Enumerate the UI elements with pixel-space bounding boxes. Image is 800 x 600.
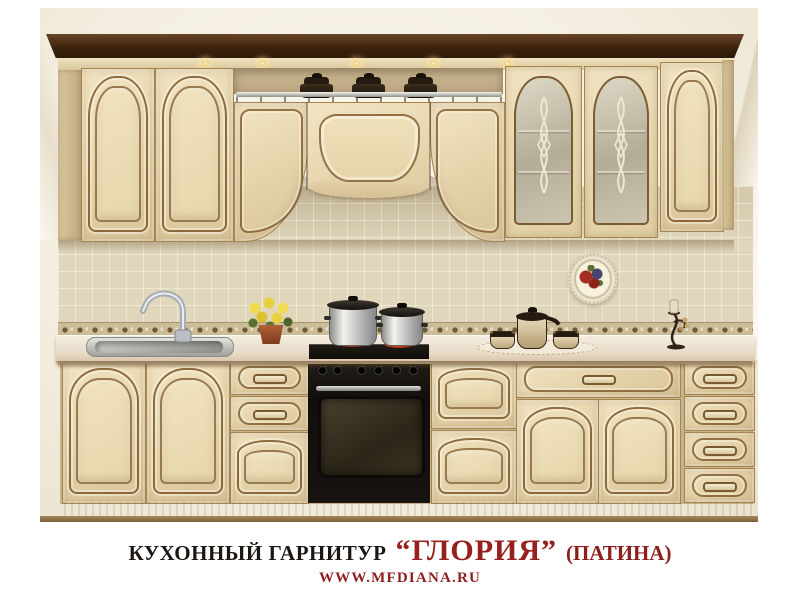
drawer bbox=[230, 396, 309, 431]
door-panel bbox=[95, 86, 141, 222]
door-panel bbox=[169, 86, 220, 222]
candle-holder bbox=[654, 294, 694, 350]
faucet bbox=[128, 282, 208, 344]
promo-image: КУХОННЫЙ ГАРНИТУР “ГЛОРИЯ” (ПАТИНА) WWW.… bbox=[0, 0, 800, 600]
drawer-handle bbox=[253, 410, 287, 420]
glass-door-2 bbox=[584, 66, 658, 238]
base-door-2 bbox=[146, 360, 230, 504]
caption: КУХОННЫЙ ГАРНИТУР “ГЛОРИЯ” (ПАТИНА) WWW.… bbox=[0, 524, 800, 600]
base-door-stacked-top bbox=[431, 360, 517, 429]
base-door-small bbox=[230, 432, 309, 504]
caption-line-1: КУХОННЫЙ ГАРНИТУР “ГЛОРИЯ” (ПАТИНА) bbox=[128, 534, 671, 568]
drawer-handle bbox=[703, 446, 737, 456]
glass-door-1 bbox=[505, 66, 582, 238]
drawer bbox=[684, 432, 755, 467]
door-panel bbox=[674, 80, 710, 212]
cabinet-side-panel-right bbox=[722, 60, 734, 230]
countertop-shadow bbox=[58, 361, 752, 369]
upper-door-2 bbox=[155, 68, 234, 242]
door-panel bbox=[160, 378, 216, 484]
cooking-pot-small bbox=[381, 312, 423, 346]
drawer-handle bbox=[703, 482, 737, 492]
upper-door-right bbox=[660, 62, 724, 232]
under-cabinet-light bbox=[353, 61, 360, 66]
floor-line bbox=[40, 516, 758, 522]
base-door-stacked-bottom bbox=[431, 430, 517, 504]
drawer-handle bbox=[253, 374, 287, 384]
candle-leaf bbox=[685, 324, 690, 329]
hood-center-panel-outline bbox=[319, 114, 420, 182]
caption-finish-note: (ПАТИНА) bbox=[566, 541, 671, 566]
panel-seam bbox=[306, 102, 308, 190]
candle-leaf bbox=[679, 327, 683, 331]
caption-product-name: “ГЛОРИЯ” bbox=[395, 534, 557, 568]
faucet-base bbox=[175, 330, 191, 342]
caption-prefix: КУХОННЫЙ ГАРНИТУР bbox=[128, 541, 386, 566]
base-door-4 bbox=[598, 399, 681, 504]
under-cabinet-light bbox=[259, 61, 266, 66]
frosted-glass bbox=[514, 76, 573, 225]
base-door-1 bbox=[62, 360, 146, 504]
panel-seam bbox=[429, 102, 431, 190]
under-cabinet-light bbox=[430, 61, 437, 66]
caption-website: WWW.MFDIANA.RU bbox=[319, 570, 481, 587]
pot-handle bbox=[421, 323, 428, 327]
upper-door-1 bbox=[81, 68, 155, 242]
pot-handle bbox=[376, 323, 383, 327]
drawer-handle bbox=[582, 375, 616, 385]
cabinet-side-panel-left bbox=[58, 70, 81, 240]
door-panel bbox=[612, 417, 667, 484]
base-door-3 bbox=[516, 399, 599, 504]
etched-ornament bbox=[527, 91, 561, 211]
oven-window bbox=[318, 396, 425, 478]
drawer-handle bbox=[703, 410, 737, 420]
door-panel bbox=[244, 450, 295, 484]
door-panel bbox=[530, 417, 585, 484]
etched-ornament bbox=[604, 91, 638, 211]
plate-fruit-motif bbox=[579, 265, 605, 289]
flower-bouquet bbox=[243, 296, 297, 330]
pot-handle bbox=[324, 316, 331, 320]
drawer bbox=[684, 396, 755, 431]
frosted-glass bbox=[593, 76, 649, 225]
candle-leaf bbox=[682, 317, 687, 322]
candle bbox=[670, 300, 678, 313]
drawer bbox=[684, 468, 755, 503]
candle-stem bbox=[672, 314, 677, 346]
under-cabinet-light bbox=[202, 61, 209, 66]
door-panel bbox=[445, 378, 503, 409]
kick-plate bbox=[64, 502, 752, 516]
crown-molding bbox=[46, 34, 744, 58]
tea-cup bbox=[553, 331, 579, 349]
door-panel bbox=[445, 448, 503, 484]
door-panel bbox=[76, 378, 132, 484]
drawer-handle bbox=[703, 374, 737, 384]
oven-handle bbox=[316, 386, 421, 391]
cooking-pot-large bbox=[329, 305, 377, 346]
tea-cup bbox=[490, 331, 515, 349]
